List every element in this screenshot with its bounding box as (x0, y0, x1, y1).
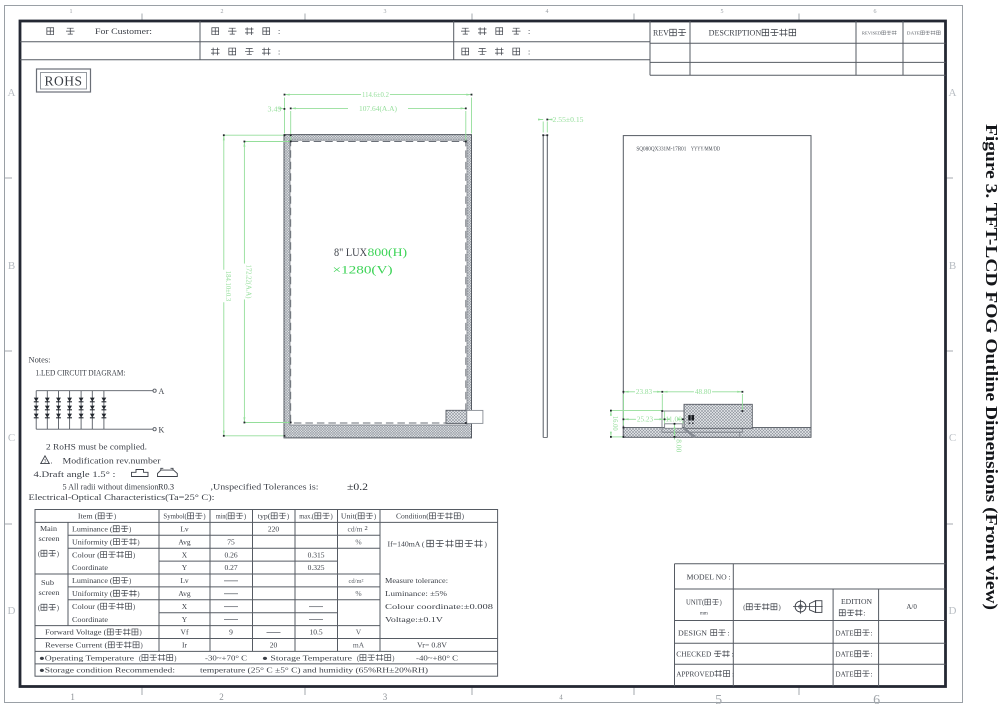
svg-text:Lv: Lv (180, 576, 189, 585)
svg-text:5 All radii without dimension: 5 All radii without dimension (63, 483, 159, 492)
svg-text:Main: Main (40, 524, 57, 533)
svg-text:Coordinate: Coordinate (72, 563, 109, 572)
svg-text:mm: mm (700, 612, 708, 617)
svg-text:X: X (182, 550, 188, 559)
svg-text:4: 4 (559, 694, 563, 702)
svg-text:Luminance (: Luminance ( (72, 576, 113, 585)
svg-text:.: . (51, 457, 53, 466)
svg-text:%: % (355, 537, 361, 546)
svg-text::: : (732, 669, 734, 678)
svg-text:Vf: Vf (181, 628, 189, 637)
svg-text:8" LUX: 8" LUX (334, 247, 368, 259)
svg-text:Condition(: Condition( (396, 512, 429, 521)
svg-text:Figure 3. TFT-LCD FOG Outline: Figure 3. TFT-LCD FOG Outline Dimensions… (982, 124, 1000, 610)
svg-text:1.LED CIRCUIT DIAGRAM:: 1.LED CIRCUIT DIAGRAM: (36, 369, 126, 378)
svg-text:Uniformity (: Uniformity ( (72, 537, 113, 546)
svg-text:C: C (949, 432, 956, 444)
svg-text:screen: screen (39, 534, 60, 543)
svg-text:Y: Y (182, 615, 188, 624)
svg-text:●Operating Temperature: ●Operating Temperature (39, 653, 135, 662)
svg-text:3: 3 (383, 692, 388, 702)
svg-text:DATE: DATE (836, 628, 854, 637)
svg-text:5: 5 (715, 693, 722, 708)
svg-text:B: B (949, 260, 956, 272)
svg-text:For Customer:: For Customer: (95, 27, 152, 36)
svg-text::: : (528, 27, 530, 36)
svg-text:Lv: Lv (180, 524, 189, 533)
svg-text:1: 1 (70, 692, 75, 702)
svg-text:Notes:: Notes: (29, 356, 51, 365)
svg-text:DESCRIPTION: DESCRIPTION (709, 29, 762, 38)
svg-text:1: 1 (70, 9, 73, 15)
svg-text:16.00: 16.00 (611, 416, 619, 431)
svg-text:CHECKED: CHECKED (676, 650, 712, 659)
svg-text:48.80: 48.80 (695, 388, 712, 396)
svg-text:REV: REV (653, 29, 669, 38)
svg-text::: : (278, 27, 280, 36)
svg-text:D: D (8, 605, 16, 617)
svg-text:75: 75 (227, 537, 235, 546)
svg-text:Avg: Avg (178, 589, 191, 598)
svg-text:Y: Y (182, 563, 188, 572)
svg-text:ROHS: ROHS (44, 74, 82, 89)
svg-text:A/0: A/0 (906, 603, 917, 611)
svg-text:Modification rev.number: Modification rev.number (63, 457, 161, 466)
svg-text:UNIT(: UNIT( (686, 599, 705, 607)
svg-text:5: 5 (721, 9, 724, 15)
svg-text:screen: screen (39, 588, 60, 597)
svg-text:8.00: 8.00 (675, 439, 683, 453)
svg-text:Colour coordinate:±0.008: Colour coordinate:±0.008 (385, 603, 494, 611)
svg-text:V: V (356, 628, 362, 637)
svg-text:Reverse Current (: Reverse Current ( (45, 641, 108, 650)
svg-text:107.64(A.A): 107.64(A.A) (359, 105, 398, 113)
svg-text:11.00: 11.00 (665, 416, 682, 424)
svg-text:Forward Voltage (: Forward Voltage ( (45, 628, 107, 637)
svg-text:Symbol(: Symbol( (163, 512, 187, 521)
svg-text:Electrical-Optical Characteris: Electrical-Optical Characteristics(Ta=25… (29, 492, 215, 502)
svg-text:temperature (25° C ±5° C) and: temperature (25° C ±5° C) and humidity (… (200, 666, 429, 675)
svg-text:● Storage Temperature: ● Storage Temperature (262, 653, 353, 662)
svg-text:6: 6 (874, 9, 877, 15)
svg-text:172.22(A.A): 172.22(A.A) (245, 265, 253, 300)
svg-text:6: 6 (873, 693, 880, 708)
svg-text:0.26: 0.26 (224, 550, 237, 559)
svg-text:×1280(V): ×1280(V) (333, 265, 393, 277)
svg-text:2: 2 (365, 525, 368, 532)
svg-text:%: % (355, 589, 361, 598)
svg-text:0.27: 0.27 (224, 563, 237, 572)
svg-text:DATE: DATE (907, 31, 920, 36)
svg-text:10.5: 10.5 (309, 628, 322, 637)
svg-text:3.49: 3.49 (268, 105, 283, 113)
svg-text:-30~+70° C: -30~+70° C (205, 653, 247, 662)
svg-text:4.Draft angle 1.5° :: 4.Draft angle 1.5° : (34, 470, 116, 479)
svg-text:2: 2 (221, 9, 224, 15)
svg-text:Vr= 0.8V: Vr= 0.8V (417, 642, 447, 650)
svg-text::: : (732, 650, 734, 659)
svg-text:25.23: 25.23 (637, 416, 654, 424)
svg-text:REVISED: REVISED (862, 31, 882, 36)
svg-text::: : (863, 609, 865, 618)
svg-text:K: K (159, 426, 165, 435)
svg-text:4: 4 (546, 9, 549, 15)
svg-text::: : (278, 48, 280, 57)
svg-text:-40~+80° C: -40~+80° C (416, 653, 458, 662)
svg-text:,Unspecified Tolerances is:: ,Unspecified Tolerances is: (211, 483, 319, 492)
svg-text:2 RoHS must be complied.: 2 RoHS must be complied. (46, 442, 147, 451)
svg-text:20: 20 (270, 641, 278, 650)
svg-text:DATE: DATE (836, 650, 854, 659)
svg-text:Luminance: ±5%: Luminance: ±5% (385, 590, 447, 598)
svg-text:Avg: Avg (178, 537, 191, 546)
svg-text:3: 3 (384, 9, 387, 15)
svg-text:B: B (8, 260, 15, 272)
svg-text:X: X (182, 602, 188, 611)
svg-text:●Storage condition Recommended: ●Storage condition Recommended: (39, 666, 175, 675)
svg-text:Unit(: Unit( (341, 512, 358, 521)
svg-text:MODEL NO :: MODEL NO : (687, 574, 731, 582)
svg-text:2.55±0.15: 2.55±0.15 (553, 116, 585, 124)
svg-text:184.10±0.3: 184.10±0.3 (224, 271, 232, 302)
svg-text:A: A (159, 387, 165, 396)
svg-text:Coordinate: Coordinate (72, 615, 109, 624)
svg-text::: : (871, 669, 873, 678)
svg-text:DATE: DATE (836, 669, 854, 678)
svg-text:D: D (949, 605, 957, 617)
svg-text:±0.2: ±0.2 (347, 483, 368, 493)
svg-text:max.(: max.( (299, 512, 314, 521)
svg-text:R0.3: R0.3 (158, 483, 174, 492)
svg-text:If=140mA (: If=140mA ( (388, 541, 426, 549)
svg-text:9: 9 (229, 628, 233, 637)
svg-text::: : (871, 650, 873, 659)
svg-text:Measure tolerance:: Measure tolerance: (385, 577, 448, 585)
svg-text:SQ080QX331M-17R01: SQ080QX331M-17R01 (636, 146, 686, 153)
svg-text::: : (871, 628, 873, 637)
svg-text:cd/m²: cd/m² (349, 578, 364, 585)
svg-text:cd/m: cd/m (348, 524, 363, 533)
svg-text::: : (528, 48, 530, 57)
svg-text:min(: min( (216, 512, 228, 521)
svg-text:3: 3 (44, 459, 47, 465)
svg-text:Colour (: Colour ( (72, 550, 100, 559)
svg-text:Colour (: Colour ( (72, 602, 100, 611)
svg-text:220: 220 (268, 524, 280, 533)
svg-text:Uniformity (: Uniformity ( (72, 589, 113, 598)
svg-text:A: A (949, 87, 957, 99)
svg-text:23.83: 23.83 (636, 388, 653, 396)
svg-text:APPROVED: APPROVED (676, 669, 715, 678)
svg-text:YYYY/MM/DD: YYYY/MM/DD (691, 146, 720, 153)
svg-text:EDITION: EDITION (841, 597, 873, 606)
svg-text:114.6±0.2: 114.6±0.2 (362, 91, 389, 99)
svg-text:800(H): 800(H) (368, 247, 408, 259)
svg-text:Voltage:±0.1V: Voltage:±0.1V (385, 616, 443, 624)
svg-text:2: 2 (219, 692, 224, 702)
svg-text:Luminance (: Luminance ( (72, 524, 113, 533)
svg-text:C: C (8, 432, 15, 444)
svg-text:0.315: 0.315 (308, 550, 325, 559)
svg-text:Item (: Item ( (78, 512, 98, 521)
svg-text:Ir: Ir (182, 641, 187, 650)
svg-text:typ(: typ( (258, 512, 271, 521)
svg-text:0.325: 0.325 (308, 563, 325, 572)
svg-text:Sub: Sub (41, 578, 54, 587)
svg-text::: : (728, 628, 730, 637)
svg-text:DESIGN: DESIGN (678, 628, 708, 637)
svg-text:A: A (8, 87, 16, 99)
svg-text:mA: mA (353, 641, 365, 650)
